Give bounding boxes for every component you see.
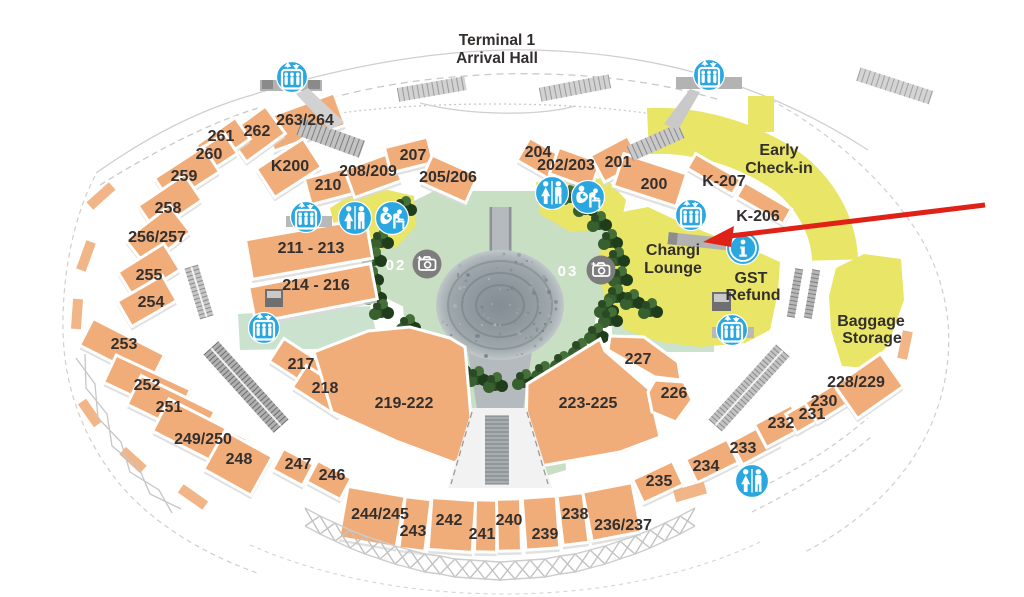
svg-text:244/245: 244/245 bbox=[351, 506, 409, 523]
svg-text:K200: K200 bbox=[271, 158, 309, 175]
svg-text:228/229: 228/229 bbox=[827, 374, 885, 391]
svg-text:217: 217 bbox=[288, 356, 315, 373]
svg-text:253: 253 bbox=[111, 336, 138, 353]
svg-text:242: 242 bbox=[436, 512, 463, 529]
svg-text:238: 238 bbox=[562, 506, 589, 523]
svg-text:254: 254 bbox=[138, 294, 165, 311]
svg-text:K-206: K-206 bbox=[736, 208, 780, 225]
svg-text:227: 227 bbox=[625, 351, 652, 368]
svg-text:243: 243 bbox=[400, 523, 427, 540]
svg-text:Storage: Storage bbox=[842, 330, 902, 347]
svg-text:260: 260 bbox=[196, 146, 223, 163]
svg-text:219-222: 219-222 bbox=[375, 395, 434, 412]
svg-text:239: 239 bbox=[532, 526, 559, 543]
svg-text:Check-in: Check-in bbox=[745, 160, 813, 177]
svg-text:GST: GST bbox=[735, 270, 768, 287]
svg-text:233: 233 bbox=[730, 440, 757, 457]
svg-text:03: 03 bbox=[558, 263, 579, 280]
svg-text:210: 210 bbox=[315, 177, 342, 194]
svg-text:263/264: 263/264 bbox=[276, 112, 334, 129]
svg-text:211 - 213: 211 - 213 bbox=[278, 240, 345, 257]
svg-text:205/206: 205/206 bbox=[419, 169, 477, 186]
svg-text:02: 02 bbox=[386, 257, 407, 274]
svg-text:255: 255 bbox=[136, 267, 163, 284]
svg-text:201: 201 bbox=[605, 154, 632, 171]
svg-text:200: 200 bbox=[641, 176, 668, 193]
svg-text:Changi: Changi bbox=[646, 242, 700, 259]
svg-text:247: 247 bbox=[285, 456, 312, 473]
svg-text:246: 246 bbox=[319, 467, 346, 484]
svg-text:Refund: Refund bbox=[725, 287, 780, 304]
svg-text:259: 259 bbox=[171, 168, 198, 185]
svg-text:261: 261 bbox=[208, 128, 235, 145]
svg-text:240: 240 bbox=[496, 512, 523, 529]
svg-text:251: 251 bbox=[156, 399, 183, 416]
svg-text:207: 207 bbox=[400, 147, 427, 164]
svg-text:249/250: 249/250 bbox=[174, 431, 232, 448]
svg-text:230: 230 bbox=[811, 393, 838, 410]
svg-text:235: 235 bbox=[646, 473, 673, 490]
svg-text:236/237: 236/237 bbox=[594, 517, 652, 534]
svg-text:214 - 216: 214 - 216 bbox=[282, 277, 350, 294]
svg-text:256/257: 256/257 bbox=[128, 229, 186, 246]
svg-text:K-207: K-207 bbox=[702, 173, 746, 190]
svg-text:258: 258 bbox=[155, 200, 182, 217]
svg-text:202/203: 202/203 bbox=[537, 157, 595, 174]
svg-text:234: 234 bbox=[693, 458, 720, 475]
svg-text:248: 248 bbox=[226, 451, 253, 468]
svg-text:Baggage: Baggage bbox=[837, 313, 905, 330]
svg-text:223-225: 223-225 bbox=[559, 395, 618, 412]
svg-text:252: 252 bbox=[134, 377, 161, 394]
svg-text:218: 218 bbox=[312, 380, 339, 397]
svg-text:232: 232 bbox=[768, 415, 795, 432]
svg-text:Terminal 1: Terminal 1 bbox=[459, 32, 536, 49]
svg-text:Arrival Hall: Arrival Hall bbox=[456, 50, 538, 67]
svg-text:262: 262 bbox=[244, 123, 271, 140]
svg-text:241: 241 bbox=[469, 526, 496, 543]
svg-text:Early: Early bbox=[759, 142, 798, 159]
svg-text:Lounge: Lounge bbox=[644, 260, 702, 277]
svg-text:226: 226 bbox=[661, 385, 688, 402]
svg-text:208/209: 208/209 bbox=[339, 163, 397, 180]
